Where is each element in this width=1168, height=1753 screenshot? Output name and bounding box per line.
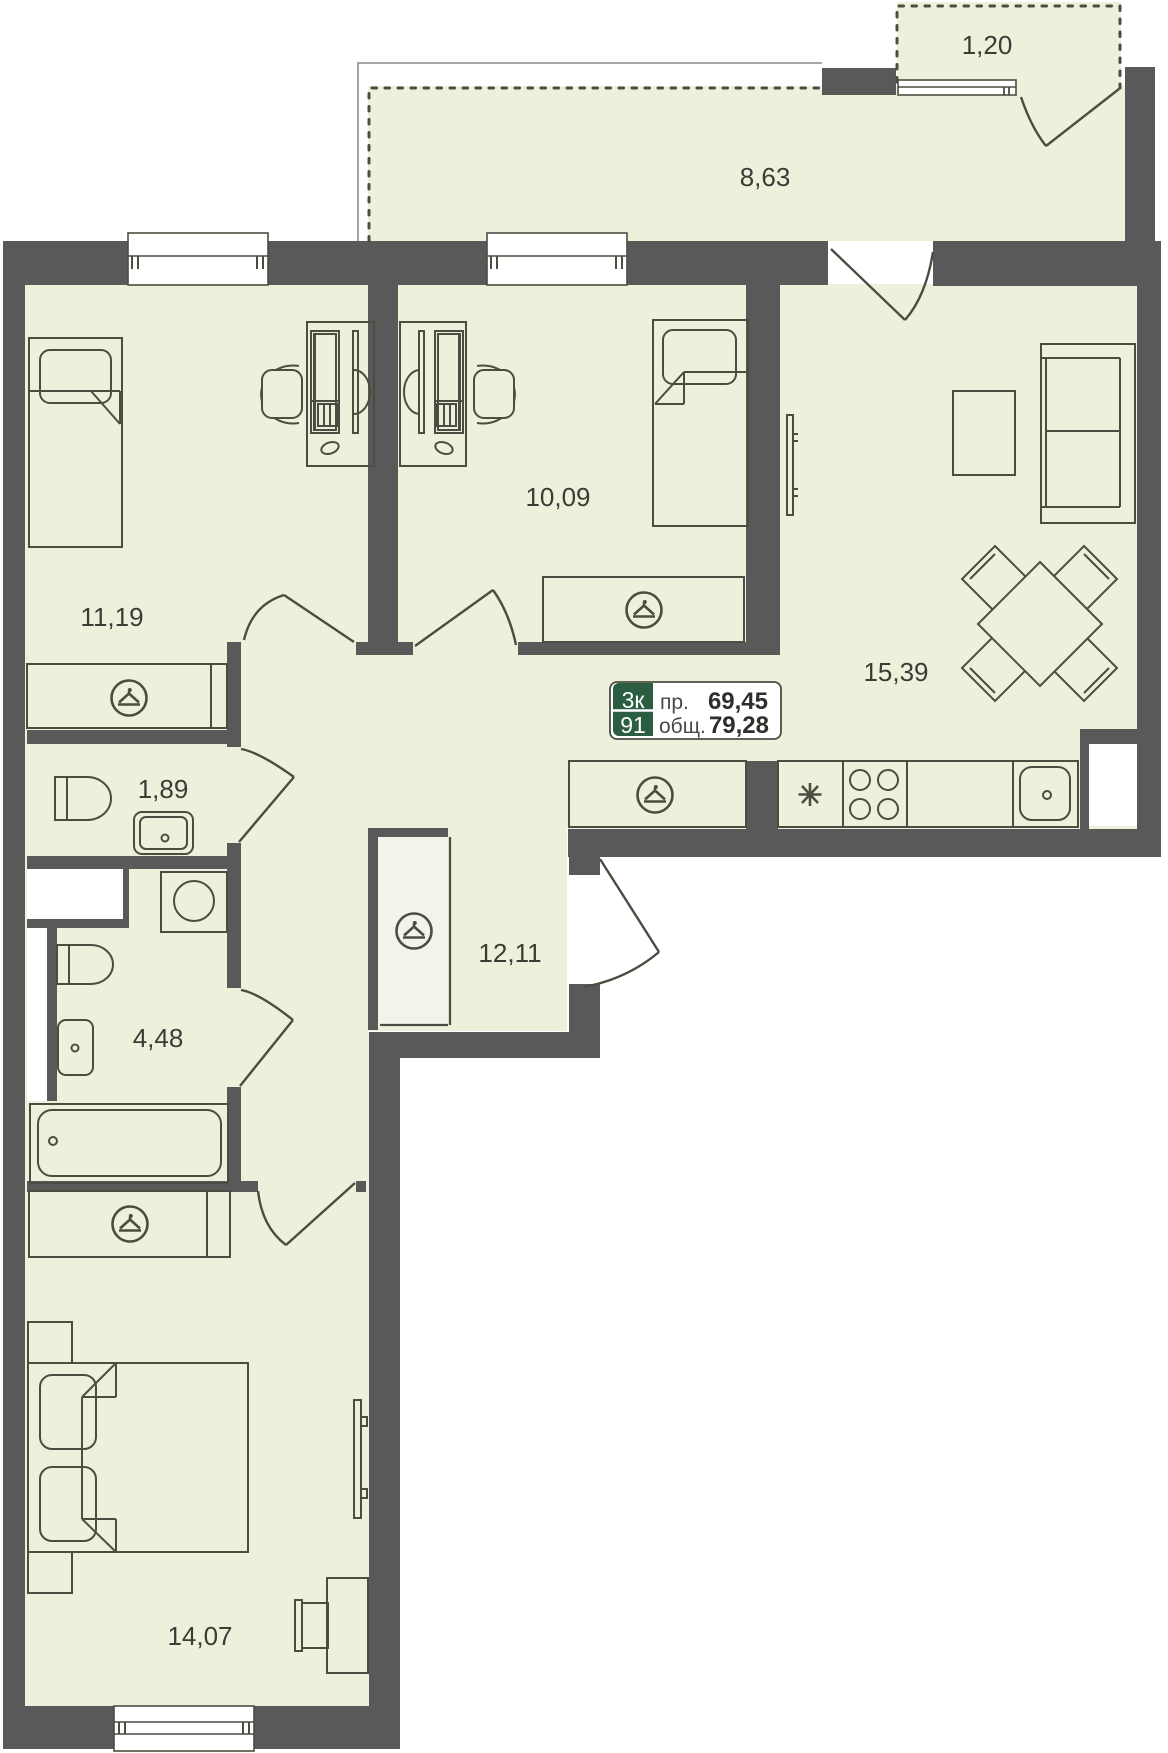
svg-text:79,28: 79,28 <box>709 712 769 739</box>
svg-text:10,09: 10,09 <box>525 482 590 512</box>
svg-text:15,39: 15,39 <box>863 657 928 687</box>
svg-text:8,63: 8,63 <box>740 162 791 192</box>
svg-text:пр.: пр. <box>660 691 689 714</box>
svg-text:12,11: 12,11 <box>478 938 541 968</box>
svg-text:общ.: общ. <box>659 715 706 738</box>
svg-text:11,19: 11,19 <box>80 602 143 632</box>
svg-text:4,48: 4,48 <box>133 1023 184 1053</box>
svg-text:1,20: 1,20 <box>962 30 1013 60</box>
svg-text:14,07: 14,07 <box>167 1621 232 1651</box>
svg-text:3к: 3к <box>622 687 646 713</box>
svg-text:69,45: 69,45 <box>708 688 768 715</box>
svg-text:1,89: 1,89 <box>138 774 189 804</box>
svg-text:91: 91 <box>620 712 646 738</box>
